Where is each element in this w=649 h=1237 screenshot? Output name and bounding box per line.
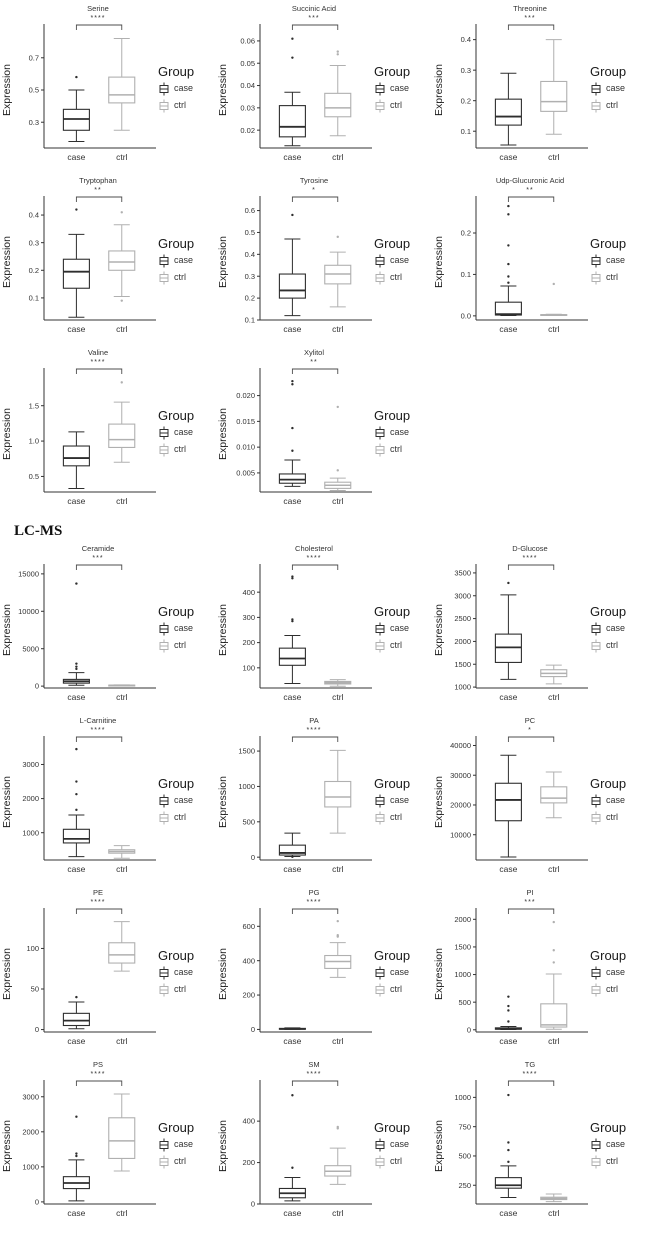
x-category-label: case [499, 864, 517, 874]
box-case [495, 302, 521, 315]
legend-entry-case: case [590, 82, 648, 96]
outlier-point [75, 780, 77, 782]
box-case [495, 634, 521, 662]
significance-stars: **** [91, 15, 106, 22]
outlier-point [291, 380, 293, 382]
legend-entry-case: case [158, 82, 216, 96]
x-category-label: ctrl [548, 1036, 559, 1046]
legend: Groupcasectrl [590, 2, 648, 174]
significance-stars: **** [307, 555, 322, 562]
legend: Groupcasectrl [590, 1058, 648, 1230]
outlier-point [553, 949, 555, 951]
outlier-point [337, 920, 339, 922]
legend: Groupcasectrl [374, 2, 432, 174]
y-tick-label: 0.4 [29, 211, 39, 220]
x-category-label: ctrl [116, 496, 127, 506]
box-ctrl [109, 251, 135, 270]
legend: Groupcasectrl [374, 174, 432, 346]
boxplot-key-icon [590, 271, 602, 285]
panel-title: PG [309, 888, 320, 897]
boxplot-key-icon [590, 794, 602, 808]
legend: Groupcasectrl [374, 542, 432, 714]
legend-entry-case: case [374, 622, 432, 636]
legend-entry-label: case [606, 256, 625, 265]
outlier-point [75, 793, 77, 795]
panel-title: D-Glucose [512, 544, 547, 553]
legend-entry-case: case [374, 254, 432, 268]
outlier-point [75, 582, 77, 584]
y-tick-label: 0.3 [245, 272, 255, 281]
panel-title: Succinic Acid [292, 4, 336, 13]
boxplot-key-icon [158, 622, 170, 636]
legend-entry-case: case [590, 966, 648, 980]
panel-title: PS [93, 1060, 103, 1069]
boxplot-panel-tryptophan: Tryptophan**Expression0.10.20.30.4casect… [0, 174, 216, 346]
outlier-point [75, 665, 77, 667]
boxplot-key-icon [158, 254, 170, 268]
box-case [495, 99, 521, 125]
legend-entry-case: case [158, 426, 216, 440]
legend-entry-label: case [174, 428, 193, 437]
boxplot-panel-tyrosine: Tyrosine*Expression0.10.20.30.40.50.6cas… [216, 174, 432, 346]
legend-entry-label: ctrl [390, 641, 402, 650]
legend-entry-case: case [374, 794, 432, 808]
significance-stars: *** [92, 555, 103, 562]
boxplot-key-icon [590, 811, 602, 825]
outlier-point [507, 582, 509, 584]
panel-title: Valine [88, 348, 108, 357]
y-axis-label: Expression [217, 948, 229, 1000]
legend-entry-case: case [158, 1138, 216, 1152]
x-category-label: case [67, 1208, 85, 1218]
legend-entry-label: ctrl [174, 641, 186, 650]
y-tick-label: 0.1 [461, 270, 471, 279]
legend-entry-ctrl: ctrl [158, 271, 216, 285]
legend-entry-label: case [390, 428, 409, 437]
y-tick-label: 2000 [454, 915, 471, 924]
legend-entry-label: case [390, 796, 409, 805]
y-tick-label: 1000 [22, 1162, 39, 1171]
y-tick-label: 2000 [22, 794, 39, 803]
y-axis-label: Expression [1, 1120, 13, 1172]
boxplot-panel-d-glucose: D-Glucose****Expression10001500200025003… [432, 542, 648, 714]
significance-stars: ** [526, 187, 533, 194]
legend-entry-label: case [390, 84, 409, 93]
legend: Groupcasectrl [158, 346, 216, 518]
panel-title: Xylitol [304, 348, 324, 357]
x-category-label: case [499, 152, 517, 162]
legend: Groupcasectrl [374, 1058, 432, 1230]
plot-svg: Tyrosine*Expression0.10.20.30.40.50.6cas… [216, 174, 374, 346]
boxplot-panel-xylitol: Xylitol**Expression0.0050.0100.0150.020c… [216, 346, 432, 518]
outlier-point [507, 1161, 509, 1163]
x-category-label: ctrl [116, 152, 127, 162]
legend-entry-label: ctrl [174, 813, 186, 822]
plot-svg: L-Carnitine****Expression100020003000cas… [0, 714, 158, 886]
legend-entry-label: ctrl [174, 985, 186, 994]
y-tick-label: 1000 [238, 782, 255, 791]
x-category-label: ctrl [548, 152, 559, 162]
boxplot-key-icon [158, 966, 170, 980]
legend-entry-label: case [606, 796, 625, 805]
legend-title: Group [590, 776, 648, 791]
plot-svg: Serine****Expression0.30.50.7casectrl [0, 2, 158, 174]
legend-entry-label: ctrl [606, 273, 618, 282]
legend-entry-label: case [606, 84, 625, 93]
significance-bracket [292, 909, 337, 914]
y-tick-label: 3000 [454, 591, 471, 600]
significance-bracket [76, 565, 121, 570]
y-tick-label: 300 [242, 613, 255, 622]
boxplot-key-icon [590, 983, 602, 997]
legend-title: Group [158, 776, 216, 791]
boxplot-key-icon [158, 983, 170, 997]
outlier-point [337, 50, 339, 52]
y-tick-label: 250 [458, 1181, 471, 1190]
box-case [279, 648, 305, 665]
legend-title: Group [590, 64, 648, 79]
legend-entry-label: case [174, 1140, 193, 1149]
legend-entry-label: ctrl [390, 273, 402, 282]
x-category-label: ctrl [116, 1208, 127, 1218]
y-tick-label: 10000 [450, 830, 471, 839]
panel-grid: Ceramide***Expression050001000015000case… [0, 542, 649, 1230]
significance-bracket [292, 369, 337, 374]
boxplot-panel-ps: PS****Expression0100020003000casectrlGro… [0, 1058, 216, 1230]
y-tick-label: 0 [35, 1025, 39, 1034]
legend-entry-label: ctrl [390, 101, 402, 110]
x-category-label: case [283, 324, 301, 334]
y-tick-label: 200 [242, 1158, 255, 1167]
legend-entry-ctrl: ctrl [590, 983, 648, 997]
significance-stars: * [312, 187, 316, 194]
box-ctrl [325, 781, 351, 806]
plot-svg: Xylitol**Expression0.0050.0100.0150.020c… [216, 346, 374, 518]
boxplot-panel-udp-glucuronic-acid: Udp-Glucuronic Acid**Expression0.00.10.2… [432, 174, 648, 346]
y-tick-label: 1000 [454, 683, 471, 692]
boxplot-key-icon [374, 271, 386, 285]
outlier-point [507, 244, 509, 246]
outlier-point [337, 1126, 339, 1128]
legend-entry-ctrl: ctrl [590, 271, 648, 285]
boxplot-key-icon [590, 99, 602, 113]
legend-entry-label: ctrl [606, 1157, 618, 1166]
outlier-point [337, 406, 339, 408]
panel-title: PC [525, 716, 536, 725]
boxplot-panel-cholesterol: Cholesterol****Expression100200300400cas… [216, 542, 432, 714]
y-tick-label: 50 [31, 985, 39, 994]
legend: Groupcasectrl [374, 346, 432, 518]
outlier-point [507, 995, 509, 997]
significance-bracket [508, 197, 553, 202]
y-tick-label: 15000 [18, 569, 39, 578]
panel-title: PI [526, 888, 533, 897]
legend-title: Group [158, 948, 216, 963]
significance-stars: **** [307, 727, 322, 734]
y-tick-label: 0 [467, 1025, 471, 1034]
significance-stars: *** [524, 899, 535, 906]
legend: Groupcasectrl [590, 714, 648, 886]
outlier-point [121, 299, 123, 301]
y-axis-label: Expression [1, 948, 13, 1000]
legend: Groupcasectrl [374, 714, 432, 886]
legend-entry-ctrl: ctrl [158, 1155, 216, 1169]
boxplot-key-icon [158, 1155, 170, 1169]
significance-bracket [76, 737, 121, 742]
panel-title: L-Carnitine [80, 716, 117, 725]
outlier-point [507, 1005, 509, 1007]
legend-title: Group [374, 408, 432, 423]
boxplot-panel-valine: Valine****Expression0.51.01.5casectrlGro… [0, 346, 216, 518]
outlier-point [75, 1152, 77, 1154]
boxplot-panel-tg: TG****Expression2505007501000casectrlGro… [432, 1058, 648, 1230]
outlier-point [507, 263, 509, 265]
x-category-label: case [283, 864, 301, 874]
y-tick-label: 1500 [238, 747, 255, 756]
box-case [63, 829, 89, 843]
legend-entry-ctrl: ctrl [158, 983, 216, 997]
y-tick-label: 0 [35, 1197, 39, 1206]
section-label: LC-MS [0, 518, 649, 542]
outlier-point [291, 1094, 293, 1096]
x-category-label: case [283, 692, 301, 702]
legend-entry-case: case [374, 1138, 432, 1152]
legend-entry-ctrl: ctrl [374, 99, 432, 113]
panel-title: Serine [87, 4, 109, 13]
legend-entry-label: case [390, 256, 409, 265]
boxplot-panel-pa: PA****Expression050010001500casectrlGrou… [216, 714, 432, 886]
significance-bracket [508, 25, 553, 30]
legend: Groupcasectrl [590, 174, 648, 346]
outlier-point [291, 427, 293, 429]
significance-bracket [76, 1081, 121, 1086]
significance-stars: * [528, 727, 532, 734]
y-axis-label: Expression [217, 604, 229, 656]
plot-svg: PC*Expression10000200003000040000casectr… [432, 714, 590, 886]
legend: Groupcasectrl [590, 542, 648, 714]
panel-title: Cholesterol [295, 544, 333, 553]
significance-bracket [508, 565, 553, 570]
outlier-point [507, 1094, 509, 1096]
y-axis-label: Expression [433, 1120, 445, 1172]
y-tick-label: 1500 [454, 943, 471, 952]
legend-title: Group [374, 776, 432, 791]
legend-entry-ctrl: ctrl [590, 639, 648, 653]
panel-title: SM [308, 1060, 319, 1069]
boxplot-key-icon [158, 639, 170, 653]
significance-bracket [292, 565, 337, 570]
boxplot-key-icon [158, 794, 170, 808]
legend-entry-case: case [590, 794, 648, 808]
panel-title: Tryptophan [79, 176, 117, 185]
x-category-label: case [283, 496, 301, 506]
y-tick-label: 200 [242, 638, 255, 647]
boxplot-key-icon [590, 254, 602, 268]
box-ctrl [541, 81, 567, 111]
boxplot-panel-pi: PI***Expression0500100015002000casectrlG… [432, 886, 648, 1058]
boxplot-key-icon [590, 1155, 602, 1169]
y-tick-label: 0 [251, 853, 255, 862]
y-tick-label: 3000 [22, 1092, 39, 1101]
y-tick-label: 0.3 [461, 66, 471, 75]
box-case [279, 474, 305, 483]
panel-title: Udp-Glucuronic Acid [496, 176, 564, 185]
outlier-point [507, 1149, 509, 1151]
legend-title: Group [158, 408, 216, 423]
y-axis-label: Expression [1, 776, 13, 828]
legend-entry-label: case [606, 968, 625, 977]
legend: Groupcasectrl [158, 174, 216, 346]
x-category-label: ctrl [332, 864, 343, 874]
box-case [279, 274, 305, 298]
legend-entry-ctrl: ctrl [374, 271, 432, 285]
boxplot-key-icon [590, 82, 602, 96]
box-ctrl [541, 787, 567, 803]
plot-svg: D-Glucose****Expression10001500200025003… [432, 542, 590, 714]
outlier-point [553, 961, 555, 963]
legend-entry-label: case [174, 256, 193, 265]
panel-title: TG [525, 1060, 536, 1069]
x-category-label: case [283, 1036, 301, 1046]
boxplot-key-icon [590, 639, 602, 653]
legend-entry-label: case [390, 968, 409, 977]
y-tick-label: 2000 [454, 637, 471, 646]
legend: Groupcasectrl [374, 886, 432, 1058]
legend-entry-label: ctrl [174, 101, 186, 110]
panel-title: PE [93, 888, 103, 897]
outlier-point [553, 283, 555, 285]
boxplot-key-icon [374, 426, 386, 440]
y-tick-label: 0.06 [240, 37, 255, 46]
x-category-label: ctrl [116, 692, 127, 702]
significance-stars: **** [523, 1071, 538, 1078]
outlier-point [337, 934, 339, 936]
box-case [495, 783, 521, 820]
box-ctrl [109, 77, 135, 103]
x-category-label: case [283, 152, 301, 162]
outlier-point [291, 856, 293, 858]
box-ctrl [109, 943, 135, 963]
y-tick-label: 500 [458, 1152, 471, 1161]
legend-entry-ctrl: ctrl [158, 639, 216, 653]
y-tick-label: 400 [242, 588, 255, 597]
boxplot-key-icon [374, 443, 386, 457]
legend-entry-ctrl: ctrl [374, 811, 432, 825]
y-tick-label: 1000 [454, 1093, 471, 1102]
plot-svg: PS****Expression0100020003000casectrl [0, 1058, 158, 1230]
legend-entry-label: ctrl [174, 273, 186, 282]
x-category-label: ctrl [332, 1036, 343, 1046]
significance-stars: **** [91, 727, 106, 734]
outlier-point [75, 809, 77, 811]
boxplot-key-icon [158, 426, 170, 440]
legend-entry-ctrl: ctrl [590, 811, 648, 825]
legend-title: Group [374, 604, 432, 619]
legend-entry-label: case [174, 968, 193, 977]
box-case [495, 1178, 521, 1189]
boxplot-key-icon [158, 271, 170, 285]
legend-entry-ctrl: ctrl [374, 443, 432, 457]
x-category-label: ctrl [548, 324, 559, 334]
x-category-label: case [283, 1208, 301, 1218]
outlier-point [75, 748, 77, 750]
y-axis-label: Expression [433, 604, 445, 656]
outlier-point [553, 921, 555, 923]
significance-stars: **** [523, 555, 538, 562]
x-category-label: case [67, 496, 85, 506]
y-axis-label: Expression [433, 64, 445, 116]
panel-title: Ceramide [82, 544, 115, 553]
y-tick-label: 0.5 [245, 228, 255, 237]
legend-entry-ctrl: ctrl [158, 811, 216, 825]
y-tick-label: 3500 [454, 569, 471, 578]
y-tick-label: 0.3 [29, 118, 39, 127]
panel-title: Threonine [513, 4, 547, 13]
y-tick-label: 30000 [450, 771, 471, 780]
legend-entry-ctrl: ctrl [374, 983, 432, 997]
outlier-point [75, 1155, 77, 1157]
plot-svg: Ceramide***Expression050001000015000case… [0, 542, 158, 714]
legend: Groupcasectrl [158, 542, 216, 714]
y-axis-label: Expression [217, 408, 229, 460]
legend-entry-case: case [590, 254, 648, 268]
x-category-label: ctrl [116, 864, 127, 874]
x-category-label: ctrl [548, 692, 559, 702]
boxplot-key-icon [374, 983, 386, 997]
x-category-label: ctrl [332, 496, 343, 506]
significance-bracket [76, 25, 121, 30]
x-category-label: ctrl [548, 864, 559, 874]
legend-entry-ctrl: ctrl [374, 639, 432, 653]
box-ctrl [325, 93, 351, 116]
legend-entry-label: ctrl [390, 1157, 402, 1166]
legend-entry-label: ctrl [606, 641, 618, 650]
legend-entry-label: case [174, 84, 193, 93]
outlier-point [337, 469, 339, 471]
plot-svg: TG****Expression2505007501000casectrl [432, 1058, 590, 1230]
x-category-label: case [499, 1208, 517, 1218]
outlier-point [75, 208, 77, 210]
boxplot-key-icon [374, 622, 386, 636]
outlier-point [291, 1167, 293, 1169]
y-tick-label: 0 [251, 1200, 255, 1209]
plot-svg: Udp-Glucuronic Acid**Expression0.00.10.2… [432, 174, 590, 346]
y-tick-label: 0.05 [240, 59, 255, 68]
outlier-point [291, 383, 293, 385]
y-axis-label: Expression [433, 776, 445, 828]
boxplot-key-icon [374, 811, 386, 825]
significance-bracket [292, 25, 337, 30]
y-tick-label: 0.03 [240, 103, 255, 112]
significance-bracket [508, 909, 553, 914]
y-axis-label: Expression [1, 64, 13, 116]
legend-title: Group [158, 1120, 216, 1135]
outlier-point [291, 450, 293, 452]
y-tick-label: 10000 [18, 607, 39, 616]
legend-title: Group [158, 236, 216, 251]
legend-entry-label: case [174, 624, 193, 633]
boxplot-key-icon [590, 622, 602, 636]
significance-bracket [292, 737, 337, 742]
y-tick-label: 1000 [454, 970, 471, 979]
significance-stars: *** [524, 15, 535, 22]
legend: Groupcasectrl [158, 1058, 216, 1230]
x-category-label: case [67, 864, 85, 874]
plot-svg: PI***Expression0500100015002000casectrl [432, 886, 590, 1058]
y-axis-label: Expression [217, 776, 229, 828]
y-tick-label: 40000 [450, 741, 471, 750]
y-tick-label: 0.1 [461, 127, 471, 136]
